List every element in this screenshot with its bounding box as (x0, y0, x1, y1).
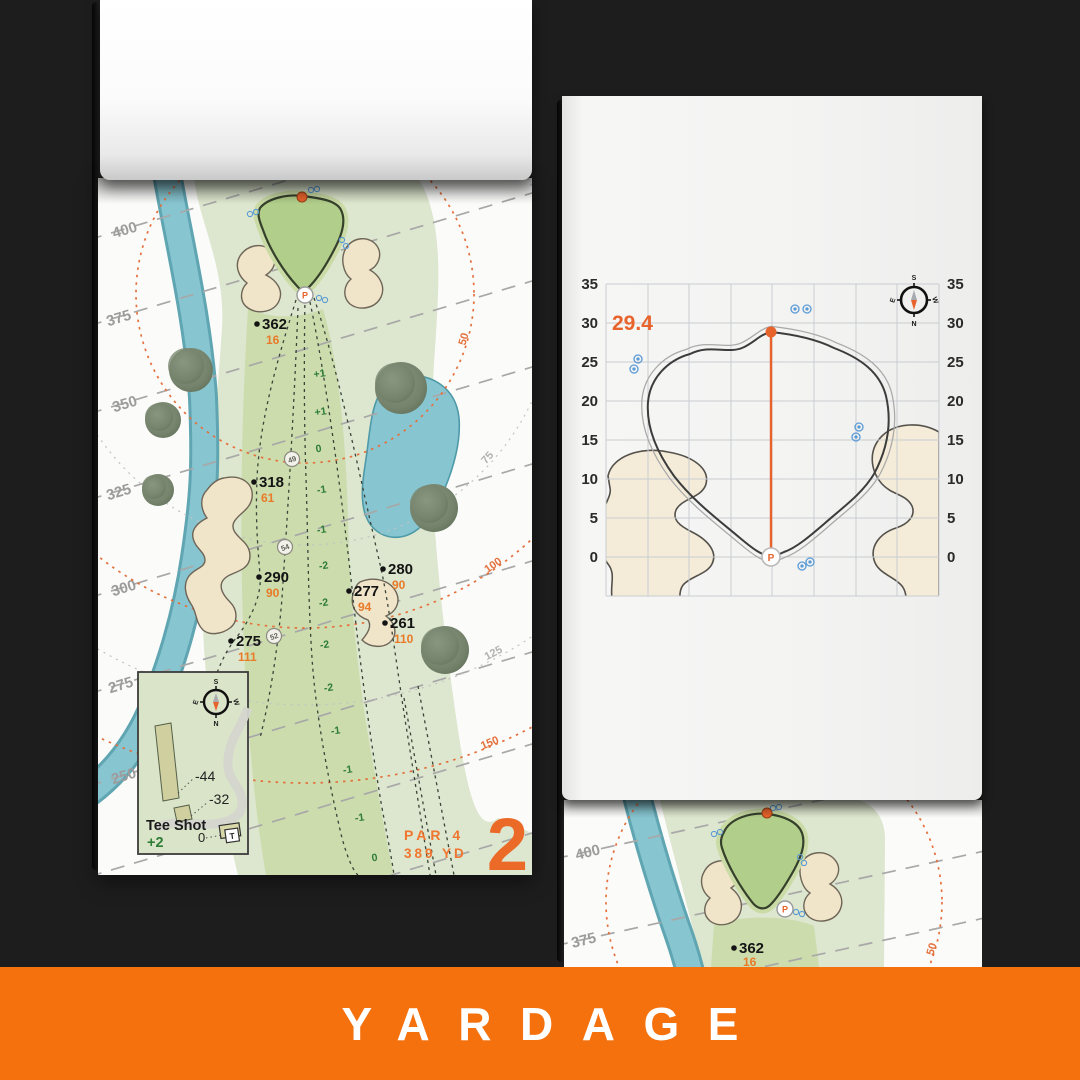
svg-text:16: 16 (266, 333, 280, 347)
svg-text:S: S (912, 275, 917, 282)
pin-marker: P (762, 548, 780, 566)
flipped-blank-page[interactable] (100, 0, 532, 180)
tee-short-label: -32 (209, 791, 229, 807)
svg-text:35: 35 (947, 276, 964, 293)
svg-text:-2: -2 (319, 638, 330, 651)
green-chart: P 35 30 25 20 15 10 5 (562, 96, 982, 800)
banner-title: YARDAGE (313, 997, 767, 1051)
svg-text:-1: -1 (316, 483, 327, 496)
svg-text:20: 20 (947, 393, 964, 410)
svg-text:-2: -2 (318, 559, 329, 572)
hole-map: 400 375 350 325 300 275 250 50 75 100 12… (98, 178, 532, 875)
svg-text:N: N (213, 721, 218, 728)
yardage-banner: YARDAGE (0, 967, 1080, 1080)
product-photo: 400 375 350 325 300 275 250 50 75 100 12… (0, 0, 1080, 1080)
svg-text:W: W (930, 296, 939, 305)
svg-text:25: 25 (581, 354, 598, 371)
svg-text:10: 10 (581, 471, 598, 488)
svg-text:5: 5 (947, 510, 955, 527)
svg-text:-2: -2 (318, 596, 329, 609)
svg-text:N: N (911, 321, 916, 328)
svg-text:90: 90 (392, 578, 406, 592)
svg-text:61: 61 (261, 491, 275, 505)
under-page[interactable]: 400 375 50 P 362 16 (564, 800, 982, 967)
tee-zero: 0 (198, 830, 205, 845)
svg-text:E: E (889, 297, 897, 304)
svg-text:275: 275 (236, 633, 261, 650)
svg-text:+1: +1 (313, 367, 327, 381)
svg-text:S: S (214, 679, 219, 686)
greenside-bunkers (598, 425, 939, 598)
svg-text:15: 15 (581, 432, 598, 449)
svg-text:277: 277 (354, 583, 379, 600)
green-detail-page[interactable]: P 35 30 25 20 15 10 5 (562, 96, 982, 800)
svg-text:261: 261 (390, 615, 415, 632)
hole-map-page[interactable]: 400 375 350 325 300 275 250 50 75 100 12… (98, 178, 532, 875)
svg-text:P: P (782, 905, 788, 915)
svg-text:362: 362 (262, 316, 287, 333)
hole-number: 2 (487, 803, 528, 875)
pin-marker: P (777, 901, 793, 917)
svg-text:30: 30 (947, 315, 964, 332)
svg-text:25: 25 (947, 354, 964, 371)
svg-text:10: 10 (947, 471, 964, 488)
fold-shadow (564, 800, 982, 818)
svg-text:280: 280 (388, 561, 413, 578)
under-page-map: 400 375 50 P 362 16 (564, 800, 982, 967)
svg-text:111: 111 (238, 650, 257, 664)
svg-text:318: 318 (259, 474, 284, 491)
svg-text:-1: -1 (330, 724, 341, 737)
svg-text:5: 5 (590, 510, 598, 527)
svg-text:+1: +1 (314, 405, 328, 419)
svg-text:0: 0 (590, 549, 598, 566)
back-edge-dot (766, 327, 777, 338)
green-depth-value: 29.4 (612, 312, 653, 335)
svg-text:-2: -2 (323, 681, 334, 694)
svg-text:-1: -1 (316, 523, 327, 536)
svg-text:-1: -1 (342, 763, 353, 776)
tee-long-label: -44 (195, 768, 215, 784)
par-label: PAR 4 (404, 827, 464, 843)
svg-text:P: P (768, 553, 775, 564)
svg-text:15: 15 (947, 432, 964, 449)
svg-text:30: 30 (581, 315, 598, 332)
svg-text:94: 94 (358, 600, 372, 614)
pin-marker: P (297, 287, 313, 303)
svg-text:0: 0 (947, 549, 955, 566)
tee-shot-inset: -44 -32 Tee Shot +2 0 T (138, 672, 248, 854)
svg-text:35: 35 (581, 276, 598, 293)
svg-text:P: P (302, 291, 308, 301)
svg-text:90: 90 (266, 586, 280, 600)
yardage-point-front: 16 (743, 955, 757, 967)
fairway (711, 918, 819, 967)
fold-shadow (98, 178, 532, 204)
tee-shot-score: +2 (147, 835, 164, 851)
svg-text:110: 110 (394, 632, 414, 646)
svg-text:-1: -1 (354, 811, 365, 824)
yards-label: 389 YD (404, 846, 467, 861)
svg-text:290: 290 (264, 569, 289, 586)
yardage-point-dot (731, 945, 737, 951)
svg-text:20: 20 (581, 393, 598, 410)
